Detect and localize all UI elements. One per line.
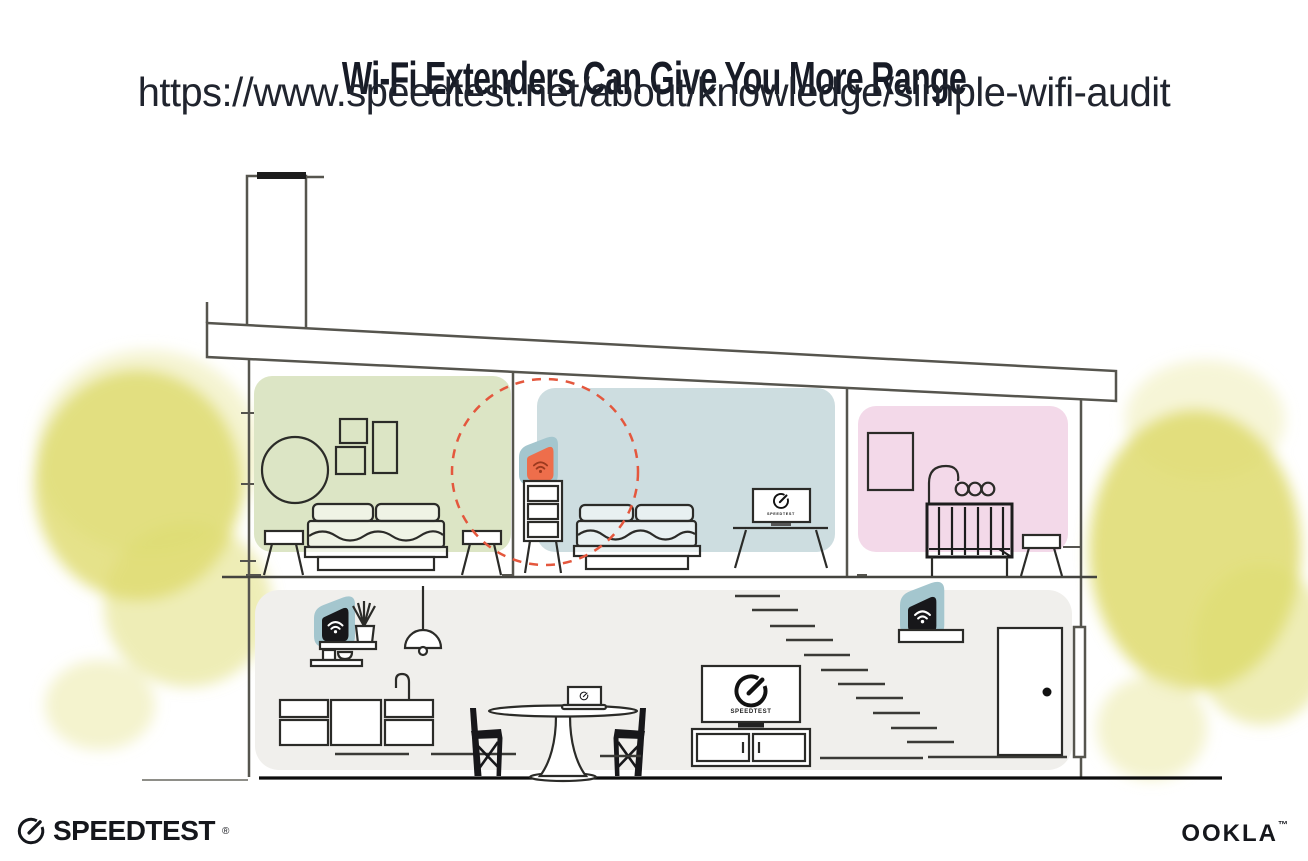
doorknob [1043,688,1052,697]
bowl [338,652,352,659]
mattress [577,521,696,546]
speedtest-gauge-icon [16,816,46,846]
chimney [247,172,324,331]
living-room-tv: SPEEDTEST [692,666,810,766]
nursery-bg [858,406,1068,552]
speedtest-logo: SPEEDTEST ® [16,815,229,847]
extender-dresser [519,437,562,573]
dresser [524,481,562,541]
svg-text:SPEEDTEST: SPEEDTEST [767,512,795,516]
stool [1021,535,1062,576]
bed [574,505,700,569]
shelf [899,630,963,642]
right-tree [1089,360,1308,780]
cup [323,650,335,660]
tv-stand [738,723,764,728]
speedtest-trademark: ® [222,826,229,837]
stool [462,531,501,575]
ookla-logo: OOKLA™ [1181,820,1290,848]
ookla-trademark: ™ [1278,820,1290,831]
nursery [847,388,1068,576]
bedroom-left [246,376,512,575]
left-tree [34,350,272,750]
ground-floor-living-area: SPEEDTEST [255,582,1085,781]
shelf-upper [320,642,376,649]
stool [264,531,303,575]
speedtest-wordmark: SPEEDTEST [53,815,215,847]
pillow [313,504,373,521]
pillow [580,505,633,521]
soundbar [771,523,791,526]
front-door [998,628,1062,755]
pillow [376,504,439,521]
bed [305,504,447,570]
house-cross-section-illustration: SPEEDTEST [0,0,1308,861]
shelf-lower [311,660,362,666]
downspout [1074,627,1085,757]
pillow [636,505,693,521]
laptop [562,687,606,709]
chimney-cap [257,172,306,179]
ookla-wordmark: OOKLA [1181,820,1278,847]
svg-text:SPEEDTEST: SPEEDTEST [730,709,771,715]
